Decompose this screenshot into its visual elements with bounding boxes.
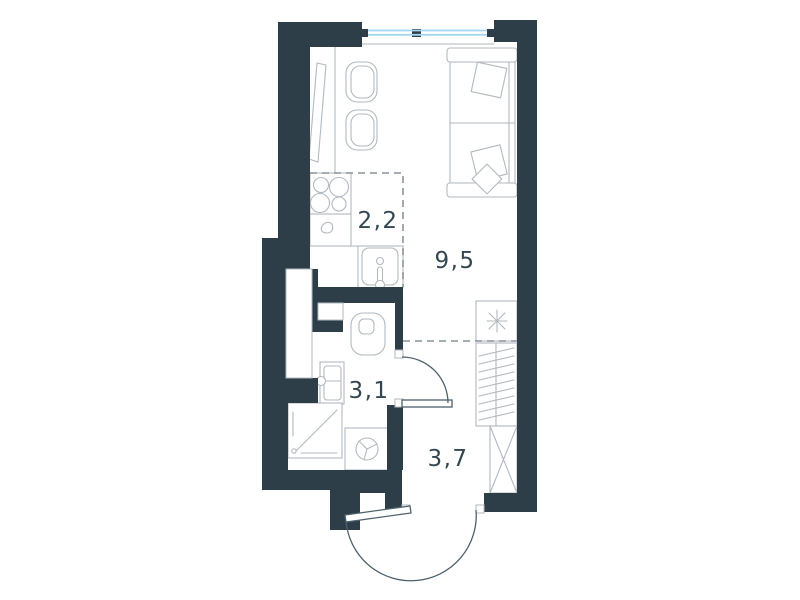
refrigerator xyxy=(476,301,517,341)
floor-plan-canvas: 2,2 9,5 3,1 3,7 xyxy=(0,0,800,600)
wall-niche xyxy=(318,303,343,320)
bathroom-door xyxy=(402,357,452,407)
sofa-bed xyxy=(447,48,517,197)
bathroom-area-label: 3,1 xyxy=(348,378,389,404)
wardrobe-shelves xyxy=(490,426,517,493)
door-jamb xyxy=(476,505,484,513)
chair xyxy=(346,62,377,102)
door-swing-arc xyxy=(346,510,476,581)
door-jamb xyxy=(395,350,403,358)
window xyxy=(368,31,487,35)
hallway-area-label: 3,7 xyxy=(427,446,468,472)
living-room-area-label: 9,5 xyxy=(434,248,475,274)
wardrobe-hanging xyxy=(476,343,517,426)
pillow xyxy=(471,62,507,98)
stove xyxy=(310,173,351,214)
shower xyxy=(288,403,342,458)
duct-shaft xyxy=(286,269,312,378)
kitchen-sink xyxy=(362,248,398,290)
chair xyxy=(346,110,377,150)
floor-plan-svg: 2,2 9,5 3,1 3,7 xyxy=(0,0,800,600)
dining-table xyxy=(309,63,326,162)
toilet xyxy=(351,313,385,355)
entrance-door xyxy=(345,506,476,581)
door-swing-arc xyxy=(402,357,448,403)
kitchen-area-label: 2,2 xyxy=(357,208,398,234)
bathroom-sink xyxy=(317,362,345,404)
washing-machine xyxy=(345,428,388,470)
